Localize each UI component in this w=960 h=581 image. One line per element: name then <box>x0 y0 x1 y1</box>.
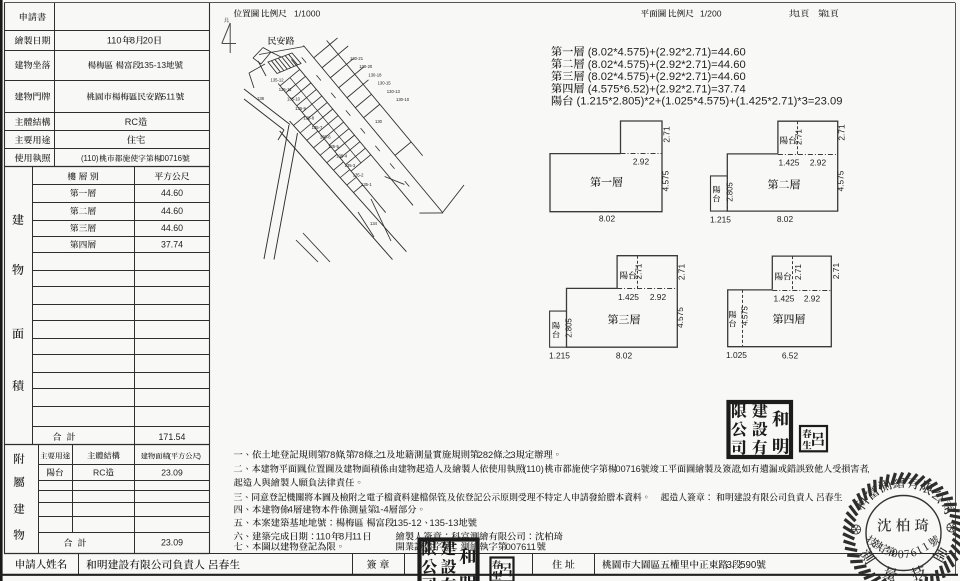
svg-text:23.09: 23.09 <box>161 467 183 477</box>
svg-text:1.215: 1.215 <box>710 215 731 225</box>
svg-text:2.71: 2.71 <box>831 263 841 280</box>
svg-text:): ) <box>198 452 200 461</box>
svg-text:130-18: 130-18 <box>368 72 382 77</box>
svg-text:1-4: 1-4 <box>375 505 388 515</box>
svg-text:RC: RC <box>125 117 139 127</box>
svg-text:(8.02*4.575)+(2.92*2.71)=44.60: (8.02*4.575)+(2.92*2.71)=44.60 <box>588 47 746 59</box>
svg-text:00716: 00716 <box>616 464 641 474</box>
svg-text:4.575: 4.575 <box>661 170 671 191</box>
svg-text:00716: 00716 <box>160 154 182 163</box>
svg-text:2.71: 2.71 <box>677 264 687 281</box>
svg-text:135-9: 135-9 <box>295 106 306 111</box>
svg-text:171.54: 171.54 <box>159 432 186 442</box>
svg-text:2.71: 2.71 <box>794 264 803 280</box>
svg-text:135-5: 135-5 <box>328 144 339 149</box>
svg-text:8: 8 <box>339 532 344 542</box>
svg-text:RC: RC <box>93 468 105 478</box>
svg-text:20: 20 <box>143 36 153 46</box>
svg-text:2.71: 2.71 <box>795 129 804 145</box>
svg-text:135-3: 135-3 <box>345 163 356 168</box>
svg-text:23.09: 23.09 <box>161 538 183 548</box>
svg-text:44.60: 44.60 <box>161 206 183 216</box>
svg-text:1: 1 <box>825 9 830 19</box>
svg-text:1.425: 1.425 <box>618 292 639 302</box>
svg-text:,: , <box>343 450 346 460</box>
svg-text:138: 138 <box>257 96 265 101</box>
svg-text:2.805: 2.805 <box>565 318 574 338</box>
svg-text:,: , <box>305 464 308 474</box>
svg-text:135-2: 135-2 <box>353 173 364 178</box>
svg-text:3: 3 <box>727 560 732 571</box>
svg-text:1: 1 <box>381 450 386 460</box>
svg-text:(110): (110) <box>81 154 99 163</box>
svg-text:1.425: 1.425 <box>778 158 799 168</box>
svg-text:135-4: 135-4 <box>336 154 347 159</box>
svg-text:,: , <box>739 464 742 474</box>
svg-text:135-10: 135-10 <box>287 97 301 102</box>
svg-text:2.71: 2.71 <box>662 126 672 143</box>
svg-text:(8.02*4.575)+(2.92*2.71)=44.60: (8.02*4.575)+(2.92*2.71)=44.60 <box>588 71 746 83</box>
svg-text:511: 511 <box>162 92 176 102</box>
svg-text:110: 110 <box>316 532 331 542</box>
svg-text:135-12: 135-12 <box>393 518 422 528</box>
svg-text:110: 110 <box>107 36 122 46</box>
svg-text:135-11: 135-11 <box>279 87 292 92</box>
svg-text:(: ( <box>168 452 171 461</box>
svg-text:8: 8 <box>130 36 135 46</box>
svg-text:2.92: 2.92 <box>633 157 650 167</box>
svg-text:4.575: 4.575 <box>836 170 846 191</box>
svg-text:282: 282 <box>478 450 494 460</box>
svg-text:11: 11 <box>352 532 362 542</box>
svg-text:130-10: 130-10 <box>396 97 410 102</box>
svg-text:135-8: 135-8 <box>303 116 314 121</box>
svg-text:4: 4 <box>288 505 293 515</box>
svg-text:590: 590 <box>740 560 757 571</box>
svg-text:1.425: 1.425 <box>773 294 794 304</box>
svg-text:135-7: 135-7 <box>312 125 323 130</box>
svg-text:135-1: 135-1 <box>361 182 372 187</box>
svg-text:1.215: 1.215 <box>549 351 570 361</box>
svg-text:2.71: 2.71 <box>837 124 847 141</box>
svg-text:(4.575*6.52)+(2.92*2.71)=37.74: (4.575*6.52)+(2.92*2.71)=37.74 <box>588 83 746 95</box>
svg-text:2.92: 2.92 <box>804 294 821 304</box>
svg-text:130-21: 130-21 <box>350 56 364 61</box>
svg-text:2.92: 2.92 <box>650 292 667 302</box>
svg-text:130-15: 130-15 <box>378 81 392 86</box>
svg-text:134: 134 <box>370 221 378 226</box>
svg-text:2.92: 2.92 <box>810 158 827 168</box>
svg-text:130-20: 130-20 <box>359 64 373 69</box>
svg-text:130: 130 <box>375 119 383 124</box>
svg-text:1: 1 <box>796 9 801 19</box>
svg-text:135-13: 135-13 <box>429 518 458 528</box>
svg-text:,: , <box>445 492 447 502</box>
svg-text:6.52: 6.52 <box>782 351 799 361</box>
svg-text:8.02: 8.02 <box>777 214 794 224</box>
svg-text:4.575: 4.575 <box>675 307 685 328</box>
svg-text:(8.02*4.575)+(2.92*2.71)=44.60: (8.02*4.575)+(2.92*2.71)=44.60 <box>588 59 746 71</box>
svg-text:78: 78 <box>354 450 364 460</box>
svg-text:1.025: 1.025 <box>726 350 747 360</box>
svg-text:130-13: 130-13 <box>387 89 401 94</box>
svg-text:135-6: 135-6 <box>320 135 331 140</box>
svg-text:8.02: 8.02 <box>616 351 633 361</box>
svg-text:1/200: 1/200 <box>700 9 722 19</box>
svg-text:44.60: 44.60 <box>161 188 183 198</box>
svg-text:(110): (110) <box>523 464 543 474</box>
svg-text:8.02: 8.02 <box>599 214 616 224</box>
svg-text:007611: 007611 <box>506 542 536 552</box>
svg-text:2.71: 2.71 <box>635 263 644 279</box>
svg-text:135-12: 135-12 <box>271 78 285 83</box>
svg-text:44.60: 44.60 <box>161 223 183 233</box>
svg-text:37.74: 37.74 <box>161 240 183 250</box>
svg-text:4.575: 4.575 <box>741 305 750 325</box>
svg-text:3: 3 <box>510 450 515 460</box>
svg-text:135-13: 135-13 <box>140 60 167 70</box>
svg-text:78: 78 <box>325 450 335 460</box>
svg-text:(1.215*2.805)*2+(1.025*4.575)+: (1.215*2.805)*2+(1.025*4.575)+(1.425*2.7… <box>577 96 843 108</box>
svg-text:1/1000: 1/1000 <box>294 9 321 19</box>
svg-text:2.805: 2.805 <box>726 182 735 202</box>
svg-text:,: , <box>867 464 870 474</box>
